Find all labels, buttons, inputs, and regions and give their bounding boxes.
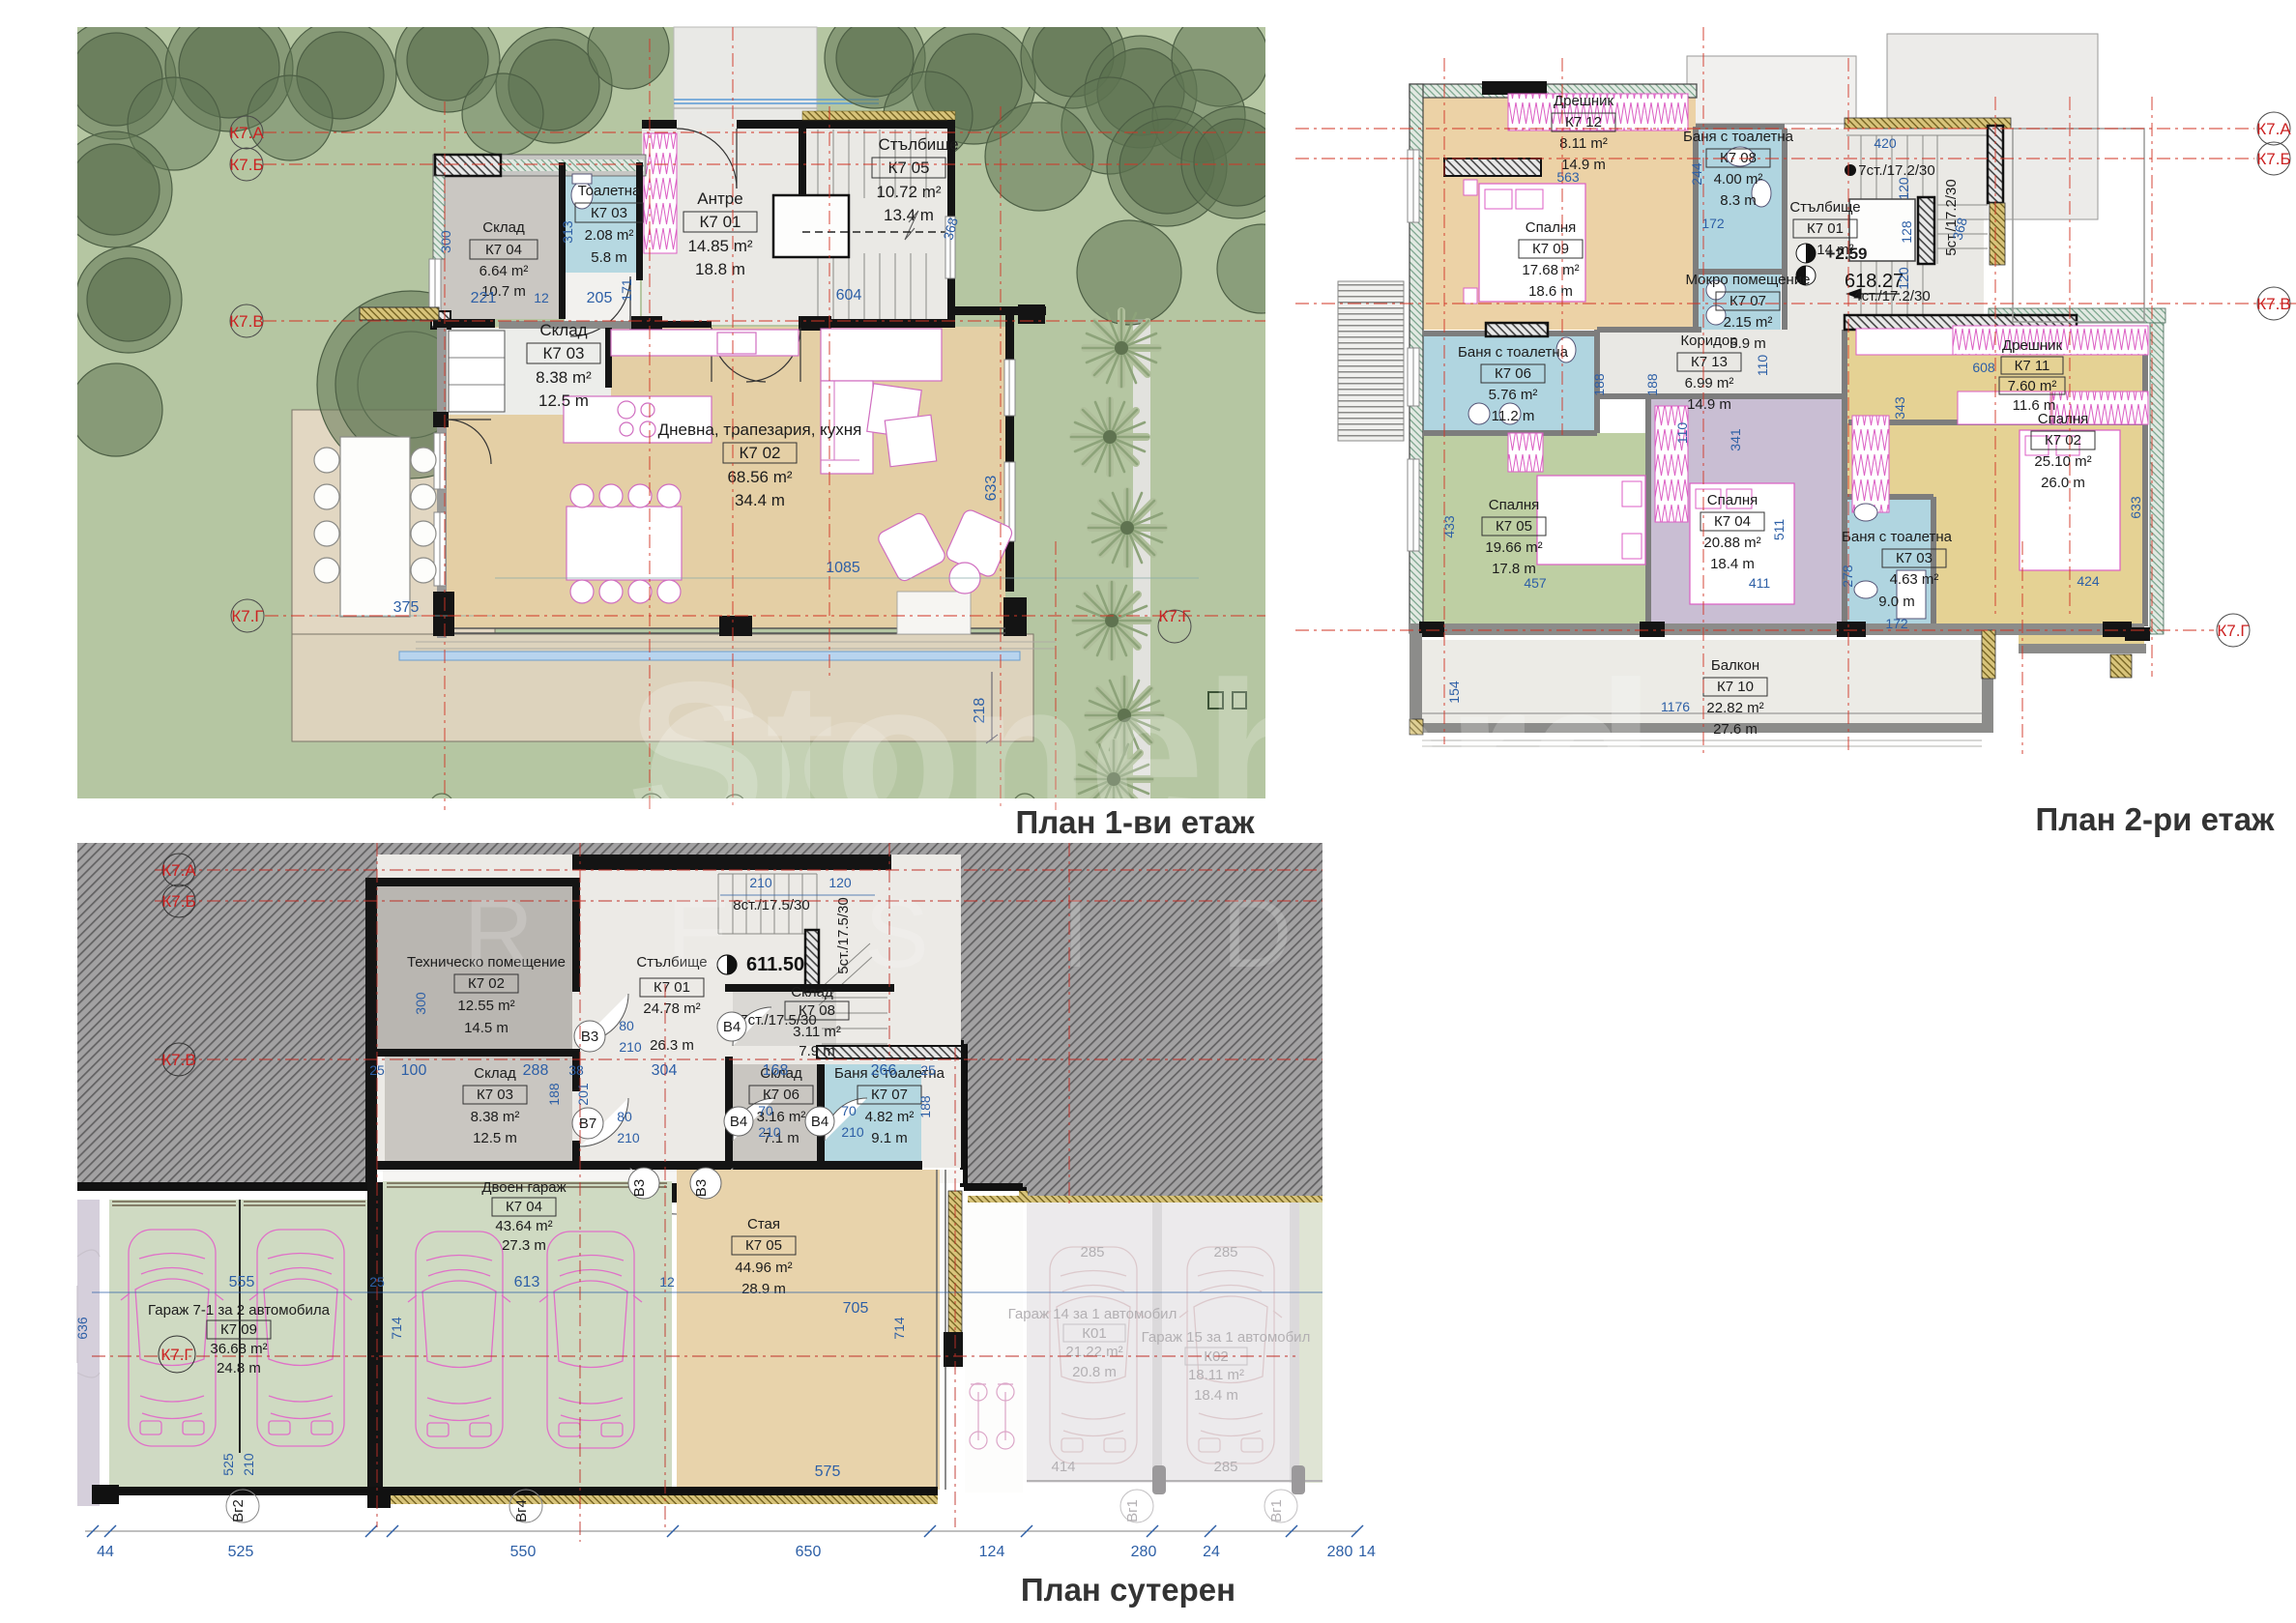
svg-text:110: 110 [1674, 422, 1690, 445]
svg-text:18.6 m: 18.6 m [1528, 283, 1573, 300]
svg-text:К7.А: К7.А [161, 861, 196, 880]
svg-text:110: 110 [1755, 355, 1770, 377]
svg-text:Стълбище: Стълбище [1789, 199, 1860, 216]
svg-text:К7 06: К7 06 [1495, 365, 1531, 382]
svg-text:+2.59: +2.59 [1825, 245, 1867, 263]
svg-text:68.56 m²: 68.56 m² [727, 468, 792, 486]
svg-text:8.38 m²: 8.38 m² [536, 368, 592, 387]
svg-text:К7 11: К7 11 [2015, 358, 2050, 374]
svg-text:Балкон: Балкон [1711, 657, 1759, 674]
svg-text:1176: 1176 [1661, 699, 1690, 714]
svg-text:24: 24 [1203, 1544, 1220, 1560]
svg-text:120: 120 [1896, 177, 1911, 200]
svg-text:205: 205 [587, 290, 613, 306]
svg-text:266: 266 [871, 1062, 897, 1079]
svg-text:К7 05: К7 05 [888, 159, 930, 177]
svg-text:210: 210 [619, 1039, 642, 1055]
svg-text:420: 420 [1874, 135, 1897, 151]
svg-text:К7 01: К7 01 [1807, 220, 1844, 237]
svg-text:Дрешник: Дрешник [2002, 337, 2063, 354]
svg-text:210: 210 [617, 1130, 640, 1145]
svg-text:27.3 m: 27.3 m [502, 1237, 546, 1254]
svg-text:Спалня: Спалня [1526, 219, 1576, 236]
svg-text:Баня с тоалетна: Баня с тоалетна [1458, 344, 1569, 361]
svg-text:636: 636 [74, 1317, 90, 1340]
svg-text:375: 375 [393, 599, 420, 616]
svg-text:9.1 m: 9.1 m [871, 1130, 908, 1146]
svg-text:К7.А: К7.А [229, 124, 264, 142]
svg-text:План сутерен: План сутерен [1021, 1572, 1235, 1608]
svg-text:221: 221 [471, 290, 497, 306]
svg-text:43.64 m²: 43.64 m² [495, 1218, 552, 1234]
svg-text:210: 210 [241, 1453, 256, 1476]
svg-text:563: 563 [1556, 169, 1580, 185]
svg-text:633: 633 [983, 476, 1000, 502]
svg-text:Двоен гараж: Двоен гараж [481, 1179, 566, 1196]
svg-text:Гараж 14 за 1 автомобил: Гараж 14 за 1 автомобил [1008, 1306, 1177, 1322]
svg-text:18.4 m: 18.4 m [1710, 556, 1755, 572]
svg-text:Вг1: Вг1 [1268, 1499, 1285, 1522]
svg-text:34.4 m: 34.4 m [735, 491, 785, 509]
svg-text:Спалня: Спалня [2038, 411, 2088, 427]
svg-text:13.4 m: 13.4 m [884, 206, 934, 224]
svg-text:Стълбище: Стълбище [878, 135, 958, 154]
svg-text:В4: В4 [723, 1019, 741, 1035]
svg-text:304: 304 [652, 1062, 678, 1079]
svg-text:313: 313 [560, 220, 575, 244]
svg-text:К7 03: К7 03 [591, 205, 627, 221]
svg-text:650: 650 [796, 1544, 822, 1560]
svg-text:Гараж 15 за 1 автомобил: Гараж 15 за 1 автомобил [1142, 1329, 1311, 1346]
svg-text:25: 25 [920, 1062, 936, 1078]
svg-text:Стая: Стая [747, 1216, 780, 1232]
svg-text:К7 04: К7 04 [1714, 513, 1751, 530]
svg-text:Мокро помещение: Мокро помещение [1685, 272, 1810, 288]
svg-text:457: 457 [1524, 575, 1547, 591]
svg-text:К7 12: К7 12 [1565, 114, 1602, 130]
svg-text:К7.Г: К7.Г [231, 607, 263, 625]
svg-text:210: 210 [758, 1124, 781, 1140]
svg-text:44.96 m²: 44.96 m² [735, 1260, 792, 1276]
svg-text:188: 188 [1591, 373, 1607, 396]
svg-text:604: 604 [836, 287, 862, 304]
svg-text:17.68 m²: 17.68 m² [1522, 262, 1579, 278]
svg-text:Антре: Антре [697, 189, 742, 208]
svg-text:К7.Б: К7.Б [229, 156, 263, 174]
svg-text:К7 05: К7 05 [745, 1237, 782, 1254]
svg-text:80: 80 [617, 1109, 632, 1124]
svg-text:К7.Г: К7.Г [1158, 607, 1190, 625]
svg-text:К7.А: К7.А [2256, 120, 2291, 138]
svg-text:2.15 m²: 2.15 m² [1724, 314, 1773, 331]
svg-text:К7 04: К7 04 [485, 242, 522, 258]
svg-text:280: 280 [1131, 1544, 1157, 1560]
svg-text:424: 424 [2077, 573, 2100, 589]
svg-text:171: 171 [619, 278, 634, 302]
svg-text:19.66 m²: 19.66 m² [1485, 539, 1542, 556]
svg-text:525: 525 [220, 1453, 236, 1476]
svg-text:172: 172 [1701, 216, 1725, 231]
svg-text:8.3 m: 8.3 m [1720, 192, 1757, 209]
svg-text:Спалня: Спалня [1489, 497, 1539, 513]
svg-text:70: 70 [841, 1103, 857, 1118]
svg-text:К7 05: К7 05 [1496, 518, 1532, 535]
svg-text:285: 285 [1080, 1244, 1104, 1261]
svg-text:К01: К01 [1082, 1325, 1106, 1342]
svg-text:К7.В: К7.В [229, 312, 263, 331]
svg-text:К7.Б: К7.Б [2256, 150, 2290, 168]
svg-text:К7 02: К7 02 [2045, 432, 2081, 449]
svg-text:14.85 m²: 14.85 m² [687, 237, 752, 255]
svg-text:188: 188 [546, 1083, 562, 1106]
svg-text:278: 278 [1840, 565, 1855, 588]
svg-text:К7 07: К7 07 [871, 1087, 908, 1103]
svg-text:575: 575 [815, 1464, 841, 1480]
svg-text:20.8 m: 20.8 m [1072, 1364, 1117, 1380]
svg-text:11.2 m: 11.2 m [1492, 408, 1535, 424]
svg-text:613: 613 [514, 1274, 540, 1290]
svg-text:188: 188 [1644, 373, 1660, 396]
svg-text:300: 300 [413, 992, 428, 1015]
svg-text:1085: 1085 [826, 560, 860, 576]
svg-text:26.0 m: 26.0 m [2041, 475, 2085, 491]
svg-text:70: 70 [758, 1103, 773, 1118]
svg-text:Гараж 7-1 за 2 автомобила: Гараж 7-1 за 2 автомобила [148, 1302, 331, 1319]
svg-text:12: 12 [534, 290, 549, 305]
svg-text:550: 550 [510, 1544, 537, 1560]
svg-text:44: 44 [97, 1544, 114, 1560]
svg-text:4.82 m²: 4.82 m² [865, 1109, 915, 1125]
svg-text:414: 414 [1051, 1459, 1075, 1475]
svg-text:285: 285 [1213, 1459, 1237, 1475]
svg-text:4.63 m²: 4.63 m² [1890, 571, 1939, 588]
svg-text:300: 300 [438, 230, 453, 253]
svg-text:К7 09: К7 09 [1532, 241, 1569, 257]
svg-text:12: 12 [659, 1274, 675, 1290]
svg-text:608: 608 [1972, 360, 1995, 375]
svg-text:К7.Г: К7.Г [160, 1346, 192, 1364]
svg-text:633: 633 [2128, 496, 2143, 519]
svg-text:8.11 m²: 8.11 m² [1559, 135, 1608, 152]
svg-text:411: 411 [1749, 575, 1771, 591]
svg-text:В4: В4 [730, 1114, 747, 1130]
svg-text:Вг2: Вг2 [230, 1499, 247, 1522]
svg-text:24.8 m: 24.8 m [217, 1360, 261, 1377]
svg-text:В3: В3 [631, 1179, 648, 1197]
svg-text:К7.В: К7.В [2256, 295, 2290, 313]
svg-text:Склад: Склад [539, 321, 587, 339]
svg-text:22.82 m²: 22.82 m² [1706, 700, 1763, 716]
svg-text:525: 525 [228, 1544, 254, 1560]
svg-text:К7 07: К7 07 [1729, 293, 1766, 309]
svg-text:714: 714 [389, 1317, 404, 1340]
svg-text:201: 201 [575, 1083, 591, 1106]
svg-text:8.38 m²: 8.38 m² [471, 1109, 520, 1125]
svg-text:К7 08: К7 08 [799, 1002, 835, 1019]
svg-text:80: 80 [619, 1018, 634, 1033]
svg-text:План 1-ви етаж: План 1-ви етаж [1015, 804, 1255, 840]
svg-text:Вг4: Вг4 [513, 1499, 530, 1522]
svg-text:433: 433 [1441, 515, 1457, 538]
svg-text:25.10 m²: 25.10 m² [2034, 453, 2091, 470]
svg-text:7ст./17.2/30: 7ст./17.2/30 [1858, 162, 1934, 179]
svg-text:К7 02: К7 02 [740, 444, 781, 462]
svg-text:10.72 m²: 10.72 m² [876, 183, 941, 201]
svg-text:6.64 m²: 6.64 m² [480, 263, 529, 279]
svg-text:280: 280 [1327, 1544, 1353, 1560]
svg-text:Баня с тоалетна: Баня с тоалетна [1683, 129, 1794, 145]
svg-text:714: 714 [891, 1317, 907, 1340]
svg-text:100: 100 [401, 1062, 427, 1079]
svg-text:К7 03: К7 03 [477, 1087, 513, 1103]
svg-text:12.5 m: 12.5 m [473, 1130, 517, 1146]
svg-text:24.78 m²: 24.78 m² [643, 1000, 700, 1017]
svg-text:18.8 m: 18.8 m [695, 260, 745, 278]
svg-text:14.5 m: 14.5 m [464, 1020, 509, 1036]
svg-text:14.9 m: 14.9 m [1687, 396, 1731, 413]
svg-text:К02: К02 [1204, 1348, 1228, 1365]
svg-text:124: 124 [979, 1544, 1005, 1560]
svg-text:210: 210 [841, 1124, 864, 1140]
svg-text:Склад: Склад [482, 219, 525, 236]
svg-text:120: 120 [1896, 267, 1911, 290]
svg-text:R Е S I D Е N C Е: R Е S I D Е N C Е [464, 880, 2147, 988]
svg-text:К7 03: К7 03 [543, 344, 585, 362]
svg-text:27.6 m: 27.6 m [1713, 721, 1758, 738]
svg-text:Спалня: Спалня [1707, 492, 1758, 508]
svg-text:7.9 m: 7.9 m [799, 1043, 835, 1059]
svg-text:3.11 m²: 3.11 m² [793, 1024, 841, 1040]
svg-text:Коридор: Коридор [1680, 333, 1737, 349]
svg-text:343: 343 [1892, 396, 1907, 420]
svg-text:6.99 m²: 6.99 m² [1685, 375, 1734, 391]
svg-text:285: 285 [1213, 1244, 1237, 1261]
svg-text:4ст./17.2/30: 4ст./17.2/30 [1853, 288, 1930, 304]
svg-text:168: 168 [763, 1062, 789, 1079]
svg-text:2.08 m²: 2.08 m² [585, 227, 634, 244]
svg-text:К7.В: К7.В [161, 1051, 195, 1069]
svg-text:511: 511 [1771, 519, 1787, 541]
svg-text:Вг1: Вг1 [1124, 1499, 1141, 1522]
svg-text:188: 188 [917, 1095, 933, 1118]
svg-text:К7.Г: К7.Г [2217, 622, 2249, 640]
svg-text:5.8 m: 5.8 m [591, 249, 627, 266]
svg-text:7.60 m²: 7.60 m² [2008, 378, 2057, 394]
svg-text:28.9 m: 28.9 m [741, 1281, 786, 1297]
svg-text:12.5 m: 12.5 m [538, 391, 589, 410]
svg-text:341: 341 [1728, 428, 1743, 451]
svg-text:26.3 m: 26.3 m [650, 1037, 694, 1054]
svg-text:288: 288 [523, 1062, 549, 1079]
svg-text:К7 08: К7 08 [1720, 150, 1757, 166]
svg-text:К7 09: К7 09 [220, 1321, 257, 1338]
svg-text:705: 705 [843, 1300, 869, 1317]
svg-text:12.55 m²: 12.55 m² [457, 998, 514, 1014]
svg-text:128: 128 [1899, 220, 1914, 244]
svg-text:4.00 m²: 4.00 m² [1714, 171, 1763, 188]
svg-text:К7 04: К7 04 [506, 1199, 542, 1215]
svg-text:244: 244 [1689, 162, 1704, 186]
svg-text:555: 555 [229, 1274, 255, 1290]
svg-text:18.11 m²: 18.11 m² [1188, 1367, 1244, 1383]
svg-text:21.22 m²: 21.22 m² [1065, 1344, 1122, 1360]
svg-text:38: 38 [568, 1062, 584, 1078]
svg-text:Тоалетна: Тоалетна [578, 183, 641, 199]
svg-text:В7: В7 [579, 1116, 596, 1132]
svg-text:5.76 m²: 5.76 m² [1489, 387, 1538, 403]
svg-text:20.88 m²: 20.88 m² [1703, 535, 1760, 551]
svg-text:18.4 m: 18.4 m [1194, 1387, 1238, 1404]
svg-text:Склад: Склад [474, 1065, 516, 1082]
svg-text:К7.Б: К7.Б [161, 892, 195, 911]
svg-text:План 2-ри етаж: План 2-ри етаж [2036, 801, 2276, 837]
svg-text:К7 06: К7 06 [763, 1087, 799, 1103]
svg-text:К7 03: К7 03 [1896, 550, 1933, 566]
svg-text:К7 10: К7 10 [1717, 679, 1754, 695]
svg-text:36.68 m²: 36.68 m² [210, 1341, 267, 1357]
svg-text:14: 14 [1358, 1544, 1376, 1560]
svg-text:9.0 m: 9.0 m [1878, 594, 1915, 610]
svg-text:К7 01: К7 01 [700, 213, 741, 231]
svg-text:172: 172 [1885, 616, 1908, 631]
svg-text:В3: В3 [693, 1179, 710, 1197]
svg-text:Дневна, трапезария, кухня: Дневна, трапезария, кухня [658, 420, 862, 439]
svg-text:В3: В3 [581, 1029, 598, 1045]
svg-text:К7 13: К7 13 [1691, 354, 1728, 370]
svg-text:Баня с тоалетна: Баня с тоалетна [1842, 529, 1953, 545]
svg-text:В4: В4 [811, 1114, 828, 1130]
